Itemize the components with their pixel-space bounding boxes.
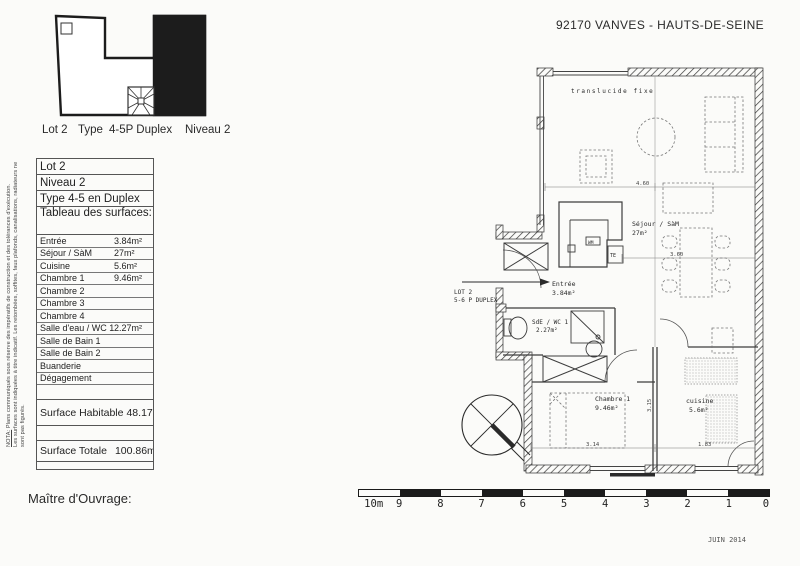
armchair-icon <box>580 150 612 183</box>
scale-label: 7 <box>478 498 484 510</box>
scale-segment <box>646 490 687 496</box>
room-area: 9.46m² <box>114 273 150 283</box>
total-label: Surface Habitable <box>40 407 123 419</box>
total-label: Surface Totale <box>40 445 107 457</box>
scale-label: 9 <box>396 498 402 510</box>
table-row: Séjour / SàM27m² <box>37 248 153 261</box>
plan-sheet: Lot 2 Type 4-5P Duplex Niveau 2 NOTA: Pl… <box>0 0 800 566</box>
table-row: Salle de Bain 1 <box>37 335 153 348</box>
location-title: 92170 VANVES - HAUTS-DE-SEINE <box>530 18 790 32</box>
room-area-sde: 2.27m² <box>536 327 558 334</box>
table-row: Chambre 3 <box>37 298 153 311</box>
scale-segment <box>728 490 769 496</box>
table-row: Entrée3.84m² <box>37 235 153 248</box>
scale-segment <box>605 490 646 496</box>
room-label: Dégagement <box>40 373 114 383</box>
scale-bar-segments <box>358 489 770 497</box>
highlighted-lot-shape <box>154 16 205 115</box>
table-spacer-row <box>37 426 153 441</box>
dim-cuisine-width: 1.83 <box>698 442 711 448</box>
scale-label: 0 <box>763 498 769 510</box>
room-area: 3.84m² <box>114 236 150 246</box>
total-value: 100.86m² <box>115 445 153 457</box>
hall-closet-icon <box>543 356 607 382</box>
room-area-sejour: 27m² <box>632 229 648 237</box>
caption-lot: Lot 2 <box>42 124 68 136</box>
coffee-table-icon <box>663 183 713 213</box>
scale-bar-labels: 10m 9 8 7 6 5 4 3 2 1 0 <box>358 498 770 511</box>
scale-label: 10m <box>364 498 383 510</box>
total-value: 48.17m² <box>126 407 153 419</box>
scale-label: 2 <box>684 498 690 510</box>
room-label: Séjour / SàM <box>40 248 114 258</box>
room-label: Salle de Bain 1 <box>40 336 114 346</box>
dim-room-depth: 3.15 <box>647 399 653 412</box>
nota-word: NOTA: <box>6 430 12 447</box>
toilet-icon <box>504 317 527 339</box>
disclaimer-line-1: NOTA: Plans communiqués sous réserve des… <box>6 151 13 447</box>
table-row: Chambre 2 <box>37 285 153 298</box>
disclaimer-text-1: Plans communiqués sous réserve des impér… <box>6 184 12 430</box>
table-row-niveau: Niveau 2 <box>37 175 153 191</box>
disclaimer-note: NOTA: Plans communiqués sous réserve des… <box>6 151 27 447</box>
north-compass-icon <box>462 395 530 461</box>
table-row: Salle de Bain 2 <box>37 348 153 361</box>
room-label: Buanderie <box>40 361 114 371</box>
room-label-entree: Entrée <box>552 280 576 288</box>
callout-line-2: 5-6 P DUPLEX <box>454 297 498 304</box>
room-label: Cuisine <box>40 261 114 271</box>
scale-label: 3 <box>643 498 649 510</box>
room-label: Salle de Bain 2 <box>40 348 114 358</box>
scale-segment <box>400 490 441 496</box>
dim-chambre-width: 3.14 <box>586 442 600 448</box>
room-label: Entrée <box>40 236 114 246</box>
dim-sejour-width: 4.60 <box>636 181 649 187</box>
floor-plan: 4.60 3.60 3.14 1.83 3.15 translucide fix… <box>440 60 780 497</box>
scale-label: 6 <box>520 498 526 510</box>
room-label-cuisine: cuisine <box>686 397 713 405</box>
key-plan-caption: Lot 2 Type 4-5P Duplex Niveau 2 <box>28 124 268 139</box>
table-row: Dégagement <box>37 373 153 386</box>
disclaimer-line-2: Les surfaces sont indiquées à titre indi… <box>13 151 27 447</box>
scale-segment <box>441 490 482 496</box>
room-area: 5.6m² <box>114 261 150 271</box>
room-label: Chambre 3 <box>40 298 114 308</box>
room-area: 27m² <box>114 248 150 258</box>
surface-table: Lot 2 Niveau 2 Type 4-5 en Duplex Tablea… <box>36 158 154 470</box>
date-stamp: JUIN 2014 <box>708 536 746 544</box>
room-area-entree: 3.84m² <box>552 289 575 297</box>
chambre-door-arc <box>605 350 637 382</box>
table-row-habitable: Surface Habitable48.17m² <box>37 400 153 426</box>
scale-segment <box>687 490 728 496</box>
window-sill <box>610 473 655 477</box>
closet-boxes <box>504 243 607 382</box>
sofa-icon <box>705 97 743 172</box>
te-label: TE <box>610 253 616 259</box>
shower-icon <box>571 311 604 343</box>
callout-line-1: LOT 2 <box>454 289 472 296</box>
scale-label: 8 <box>437 498 443 510</box>
room-label: Salle d'eau / WC 1 <box>40 323 114 333</box>
room-area-cuisine: 5.6m² <box>689 406 709 414</box>
maitre-ouvrage-label: Maître d'Ouvrage: <box>28 491 132 506</box>
wm-label: WM <box>588 240 594 246</box>
table-row-lot: Lot 2 <box>37 159 153 175</box>
table-row-totale: Surface Totale100.86m² <box>37 441 153 462</box>
dining-table-icon <box>662 228 730 297</box>
scale-segment <box>523 490 564 496</box>
terrace-door-arc <box>728 441 754 467</box>
cuisine-door-arc <box>660 319 688 347</box>
room-area: 2.27m² <box>114 323 150 333</box>
bathroom-fixtures <box>504 311 604 357</box>
table-row: Cuisine5.6m² <box>37 260 153 273</box>
table-row: Chambre 19.46m² <box>37 273 153 286</box>
table-spacer-row <box>37 385 153 400</box>
table-row: Chambre 4 <box>37 310 153 323</box>
entry-closet-icon <box>504 243 548 270</box>
scale-bar: 10m 9 8 7 6 5 4 3 2 1 0 <box>358 489 770 511</box>
caption-type-label: Type <box>78 124 103 136</box>
table-row: Salle d'eau / WC 12.27m² <box>37 323 153 336</box>
scale-label: 4 <box>602 498 608 510</box>
table-row-title: Tableau des surfaces: <box>37 207 153 235</box>
table-spacer-row <box>37 462 153 469</box>
room-label-sejour: Séjour / SàM <box>632 220 679 228</box>
dim-dining-width: 3.60 <box>670 252 683 258</box>
room-area-chambre1: 9.46m² <box>595 404 618 412</box>
room-label-window: translucide fixe <box>571 88 654 95</box>
scale-label: 5 <box>561 498 567 510</box>
round-table-icon <box>637 118 675 156</box>
caption-niveau: Niveau 2 <box>185 124 230 136</box>
room-label: Chambre 1 <box>40 273 114 283</box>
scale-label: 1 <box>726 498 732 510</box>
key-plan <box>28 4 238 131</box>
room-label-chambre1: Chambre 1 <box>595 395 630 403</box>
table-row-type: Type 4-5 en Duplex <box>37 191 153 207</box>
scale-segment <box>482 490 523 496</box>
room-label-sde: SdE / WC 1 <box>532 319 569 326</box>
room-label: Chambre 2 <box>40 286 114 296</box>
spiral-stair-icon <box>128 87 154 115</box>
scale-segment <box>564 490 605 496</box>
room-label: Chambre 4 <box>40 311 114 321</box>
caption-type-value: 4-5P Duplex <box>109 124 172 136</box>
table-row: Buanderie <box>37 360 153 373</box>
key-plan-drawing <box>28 4 238 126</box>
side-chair-icon <box>712 328 733 353</box>
scale-segment <box>359 490 400 496</box>
